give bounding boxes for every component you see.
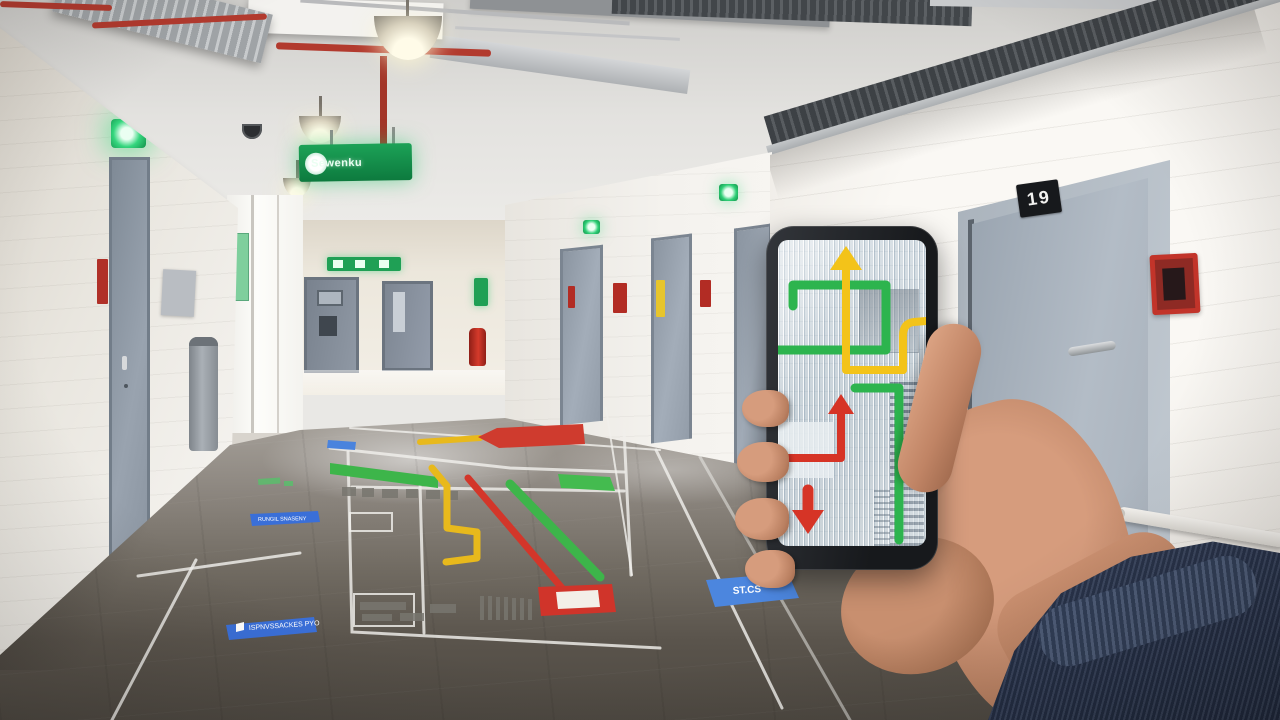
door-window	[319, 316, 337, 336]
pendant-lamp	[299, 116, 341, 143]
plan-green-strip	[330, 463, 438, 488]
alarm-panel	[1162, 267, 1186, 300]
end-double-door-right	[382, 281, 433, 371]
plan-equipment-glyphs	[342, 487, 532, 621]
lamp-stem	[319, 96, 322, 118]
green-route	[855, 388, 899, 540]
door-window	[317, 290, 343, 306]
plan-line	[138, 553, 300, 576]
red-wall-sign	[97, 259, 108, 304]
plan-border	[624, 430, 631, 575]
floor-green-mark	[258, 477, 280, 485]
red-wall-sign	[568, 286, 575, 308]
red-up-arrow-icon	[828, 394, 854, 414]
plan-green-rect	[558, 474, 615, 491]
plan-red-banner-arrow	[478, 424, 585, 448]
exit-light-icon	[719, 184, 738, 201]
fingertip	[745, 550, 795, 588]
yellow-door-sign	[656, 280, 665, 317]
door-number-plate: 19	[1016, 179, 1062, 218]
red-down-arrow-icon	[792, 510, 824, 534]
wall-panel	[161, 269, 196, 317]
door-window	[393, 292, 405, 332]
plan-yellow-route	[420, 438, 480, 442]
floor-green-mark	[284, 481, 293, 486]
red-wall-sign	[700, 280, 711, 307]
fire-alarm-call-point	[1149, 253, 1200, 315]
exit-strip-sign	[327, 257, 401, 271]
plan-room	[350, 513, 392, 531]
plan-border	[330, 448, 624, 472]
air-duct	[430, 34, 691, 94]
yellow-up-arrow-icon	[830, 246, 862, 270]
exit-sign-small	[474, 278, 488, 306]
conduit-pipe	[455, 26, 680, 41]
plan-green-route	[510, 484, 600, 577]
fingertip	[737, 442, 789, 482]
plan-line	[112, 560, 196, 720]
end-double-door-left	[304, 277, 359, 373]
exit-sign-label: Sewenku	[311, 156, 362, 169]
security-camera-icon	[242, 124, 262, 139]
bin-rim	[189, 337, 218, 346]
hanging-exit-sign: Sewenku	[299, 143, 413, 182]
red-wall-sign	[613, 283, 627, 313]
corridor-photo: Sewenku	[0, 0, 1280, 720]
fingertip	[742, 390, 789, 427]
navigation-routes	[778, 240, 926, 546]
exit-light-icon	[583, 220, 600, 234]
floor-label-large: ISPNVSSACKES PYO	[226, 617, 320, 640]
plan-line	[420, 483, 424, 633]
floor-label-right-text: ST.CS	[732, 584, 761, 597]
floor-label-small: RUNGIL SNASENY	[250, 511, 320, 526]
fingertip	[735, 498, 789, 540]
plan-red-sign-center	[556, 590, 600, 609]
floor-label-small-text: RUNGIL SNASENY	[258, 516, 307, 523]
green-route	[778, 285, 886, 350]
